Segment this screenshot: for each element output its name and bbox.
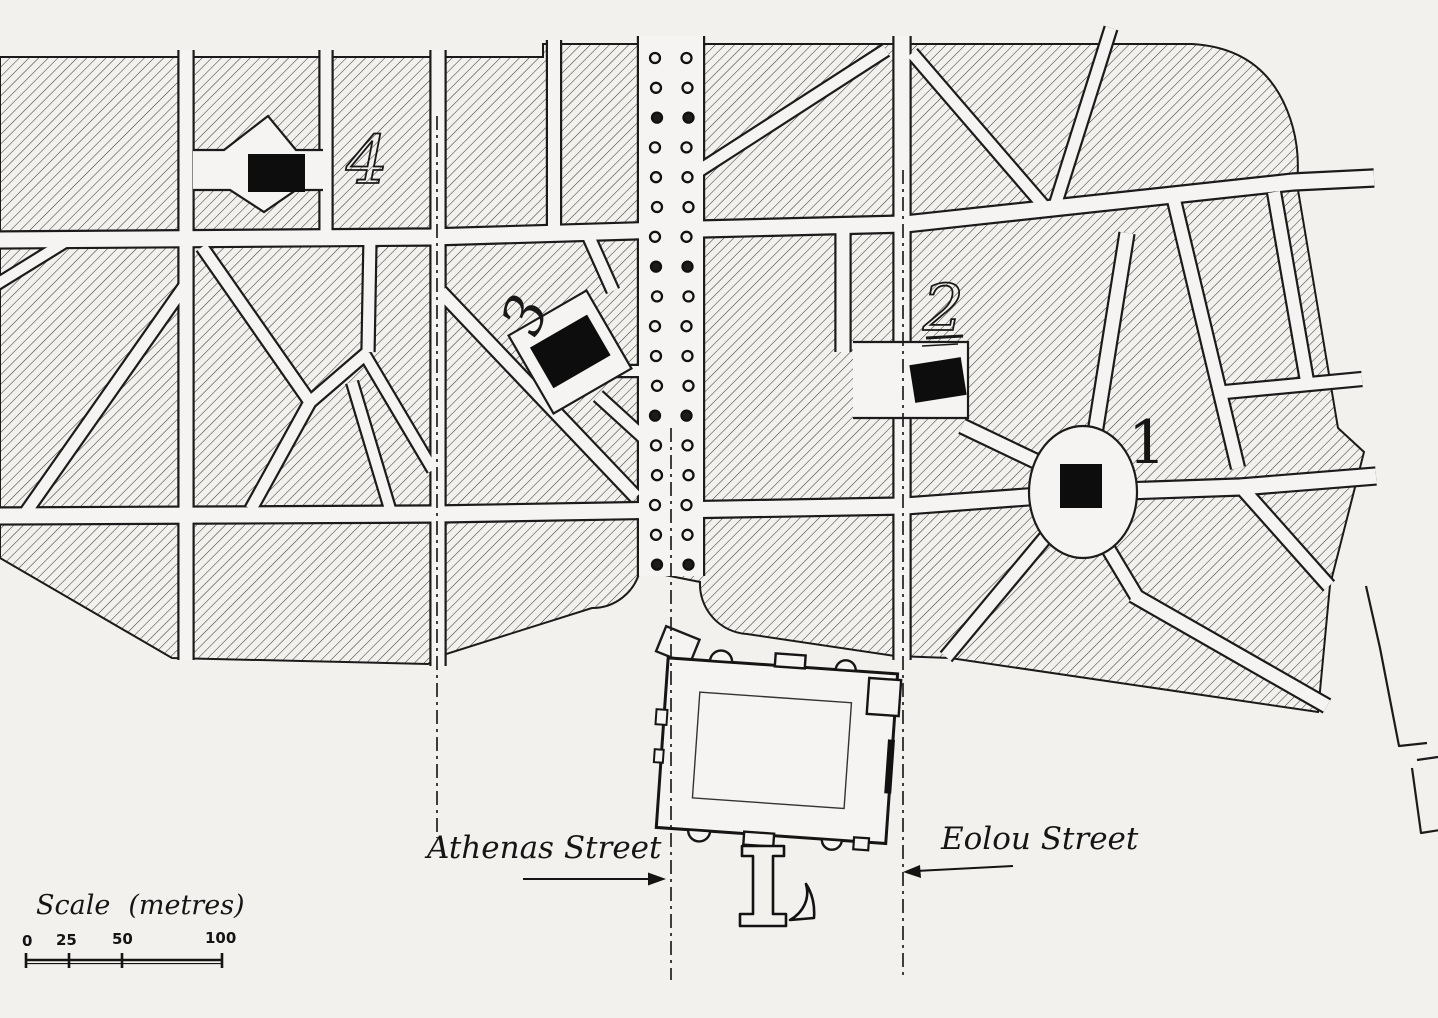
tree-icon bbox=[652, 381, 662, 391]
tree-icon bbox=[684, 113, 694, 123]
tree-icon bbox=[682, 232, 692, 242]
athenas-street-label: Athenas Street bbox=[424, 830, 662, 866]
central-building bbox=[648, 645, 903, 854]
tree-icon bbox=[683, 172, 693, 182]
monument-2-footprint bbox=[909, 357, 966, 403]
tree-icon bbox=[684, 202, 694, 212]
monument-1-footprint bbox=[1060, 464, 1102, 508]
athens-city-map: Athenas Street Eolou Street 4 3 2 1 Scal… bbox=[0, 0, 1438, 1018]
tree-icon bbox=[682, 411, 692, 421]
tree-icon bbox=[683, 530, 693, 540]
tree-icon bbox=[684, 470, 694, 480]
tree-icon bbox=[650, 142, 660, 152]
tree-icon bbox=[682, 142, 692, 152]
scale-tick-25: 25 bbox=[56, 931, 77, 949]
map-canvas: Athenas Street Eolou Street 4 3 2 1 Scal… bbox=[0, 0, 1438, 1018]
marker-4-number: 4 bbox=[345, 122, 388, 199]
tree-icon bbox=[683, 440, 693, 450]
marker-2-clearing bbox=[853, 342, 968, 418]
tree-icon bbox=[651, 351, 661, 361]
scale-tick-0: 0 bbox=[22, 932, 32, 950]
tree-icon bbox=[650, 411, 660, 421]
tree-icon bbox=[684, 291, 694, 301]
tree-icon bbox=[652, 560, 662, 570]
tree-icon bbox=[684, 560, 694, 570]
tree-icon bbox=[683, 83, 693, 93]
tree-icon bbox=[651, 440, 661, 450]
tree-icon bbox=[682, 500, 692, 510]
tree-icon bbox=[651, 262, 661, 272]
marker-1-clearing bbox=[1029, 426, 1137, 558]
scale-tick-50: 50 bbox=[112, 930, 133, 948]
eolou-street-label: Eolou Street bbox=[940, 821, 1139, 857]
tree-icon bbox=[651, 530, 661, 540]
tree-icon bbox=[682, 321, 692, 331]
tree-icon bbox=[652, 291, 662, 301]
tree-icon bbox=[652, 470, 662, 480]
tree-icon bbox=[650, 232, 660, 242]
monument-4-footprint bbox=[248, 154, 305, 192]
tree-icon bbox=[652, 202, 662, 212]
tree-icon bbox=[650, 500, 660, 510]
tree-icon bbox=[651, 83, 661, 93]
tree-icon bbox=[682, 53, 692, 63]
marker-1-number: 1 bbox=[1128, 408, 1166, 478]
tree-icon bbox=[650, 53, 660, 63]
tree-icon bbox=[683, 262, 693, 272]
tree-icon bbox=[683, 351, 693, 361]
tree-icon bbox=[650, 321, 660, 331]
tree-icon bbox=[651, 172, 661, 182]
tree-icon bbox=[652, 113, 662, 123]
scale-tick-100: 100 bbox=[205, 929, 236, 947]
scale-title: Scale(metres) bbox=[36, 890, 245, 921]
tree-icon bbox=[684, 381, 694, 391]
